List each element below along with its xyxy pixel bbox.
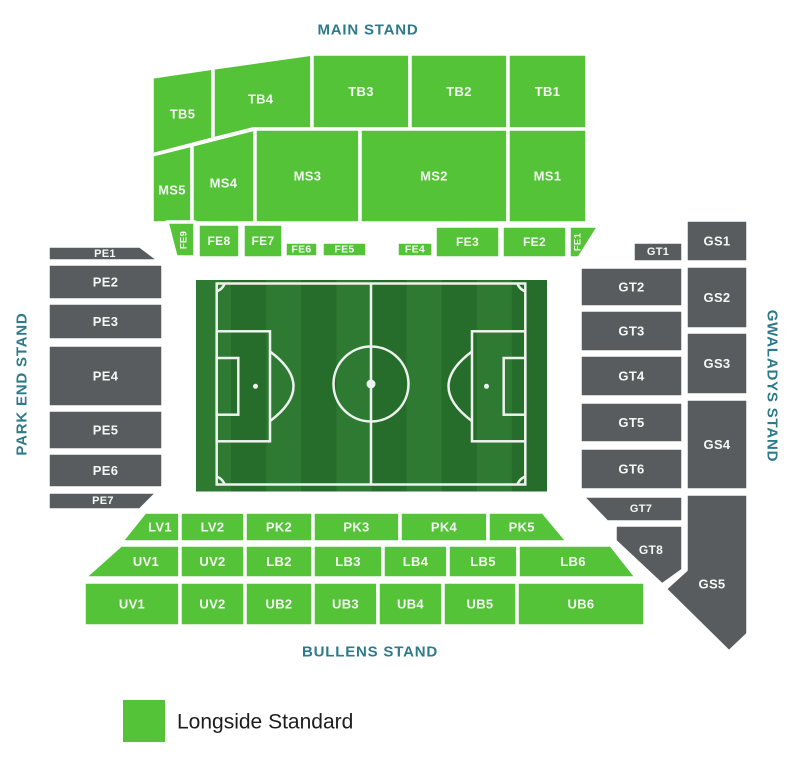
section-PE5[interactable] <box>48 410 163 450</box>
stand-label-bullens: BULLENS STAND <box>302 644 438 661</box>
section-MS4[interactable] <box>192 129 255 223</box>
section-GT6[interactable] <box>580 448 683 490</box>
section-LV2[interactable] <box>180 512 245 542</box>
section-TB3[interactable] <box>312 54 410 129</box>
section-LB4[interactable] <box>383 545 448 578</box>
section-FE9[interactable] <box>167 222 195 257</box>
section-GT4[interactable] <box>580 355 683 397</box>
section-PK2[interactable] <box>245 512 313 542</box>
section-PE2[interactable] <box>48 264 163 300</box>
section-PE4[interactable] <box>48 345 163 407</box>
section-LB2[interactable] <box>245 545 313 578</box>
legend-swatch-longside-standard <box>123 700 165 742</box>
section-GT5[interactable] <box>580 402 683 443</box>
section-LB3[interactable] <box>313 545 383 578</box>
section-TB1[interactable] <box>508 54 587 129</box>
section-LV1[interactable] <box>121 512 180 542</box>
pitch <box>196 280 547 492</box>
section-GS4[interactable] <box>686 399 748 490</box>
legend: Longside Standard <box>123 700 353 742</box>
stadium-map: TB5TB4TB3TB2TB1MS5MS4MS3MS2MS1FE9FE8FE7F… <box>0 0 798 766</box>
legend-label-longside-standard: Longside Standard <box>177 711 353 734</box>
stand-label-gwaladys: GWALADYS STAND <box>764 310 781 463</box>
section-GS2[interactable] <box>686 266 748 329</box>
section-FE6[interactable] <box>285 242 318 257</box>
section-UB5[interactable] <box>443 582 517 626</box>
section-UB3[interactable] <box>313 582 378 626</box>
section-TB2[interactable] <box>410 54 508 129</box>
section-LB5[interactable] <box>448 545 518 578</box>
section-FE5[interactable] <box>322 242 367 257</box>
section-PE6[interactable] <box>48 453 163 488</box>
section-TB4[interactable] <box>213 54 312 139</box>
center-spot <box>367 380 376 389</box>
section-PE7[interactable] <box>48 492 158 510</box>
section-UB2[interactable] <box>245 582 313 626</box>
section-FE8[interactable] <box>198 224 240 258</box>
section-UV1-middle[interactable] <box>84 545 180 578</box>
section-MS1[interactable] <box>508 129 587 223</box>
section-GS1[interactable] <box>686 220 748 262</box>
section-UB4[interactable] <box>378 582 443 626</box>
stand-label-main: MAIN STAND <box>317 22 418 39</box>
section-UB6[interactable] <box>517 582 645 626</box>
section-FE2[interactable] <box>502 226 567 258</box>
section-PK4[interactable] <box>400 512 488 542</box>
section-UV2-front[interactable] <box>180 582 245 626</box>
section-GT7[interactable] <box>582 496 683 522</box>
section-UV1-front[interactable] <box>84 582 180 626</box>
section-GT3[interactable] <box>580 310 683 352</box>
section-UV2-middle[interactable] <box>180 545 245 578</box>
section-MS2[interactable] <box>360 129 508 223</box>
section-PE3[interactable] <box>48 303 163 340</box>
section-FE1[interactable] <box>569 226 599 258</box>
section-FE4[interactable] <box>397 242 433 257</box>
section-PK3[interactable] <box>313 512 400 542</box>
section-GT1[interactable] <box>633 242 683 262</box>
section-LB6[interactable] <box>518 545 637 578</box>
section-PK5[interactable] <box>488 512 568 542</box>
section-MS3[interactable] <box>255 129 360 223</box>
stand-label-park-end: PARK END STAND <box>14 312 31 455</box>
section-FE3[interactable] <box>435 226 500 258</box>
section-PE1[interactable] <box>48 246 160 261</box>
section-GT2[interactable] <box>580 267 683 307</box>
section-MS5[interactable] <box>152 145 192 223</box>
section-GS3[interactable] <box>686 332 748 395</box>
section-FE7[interactable] <box>243 224 283 258</box>
